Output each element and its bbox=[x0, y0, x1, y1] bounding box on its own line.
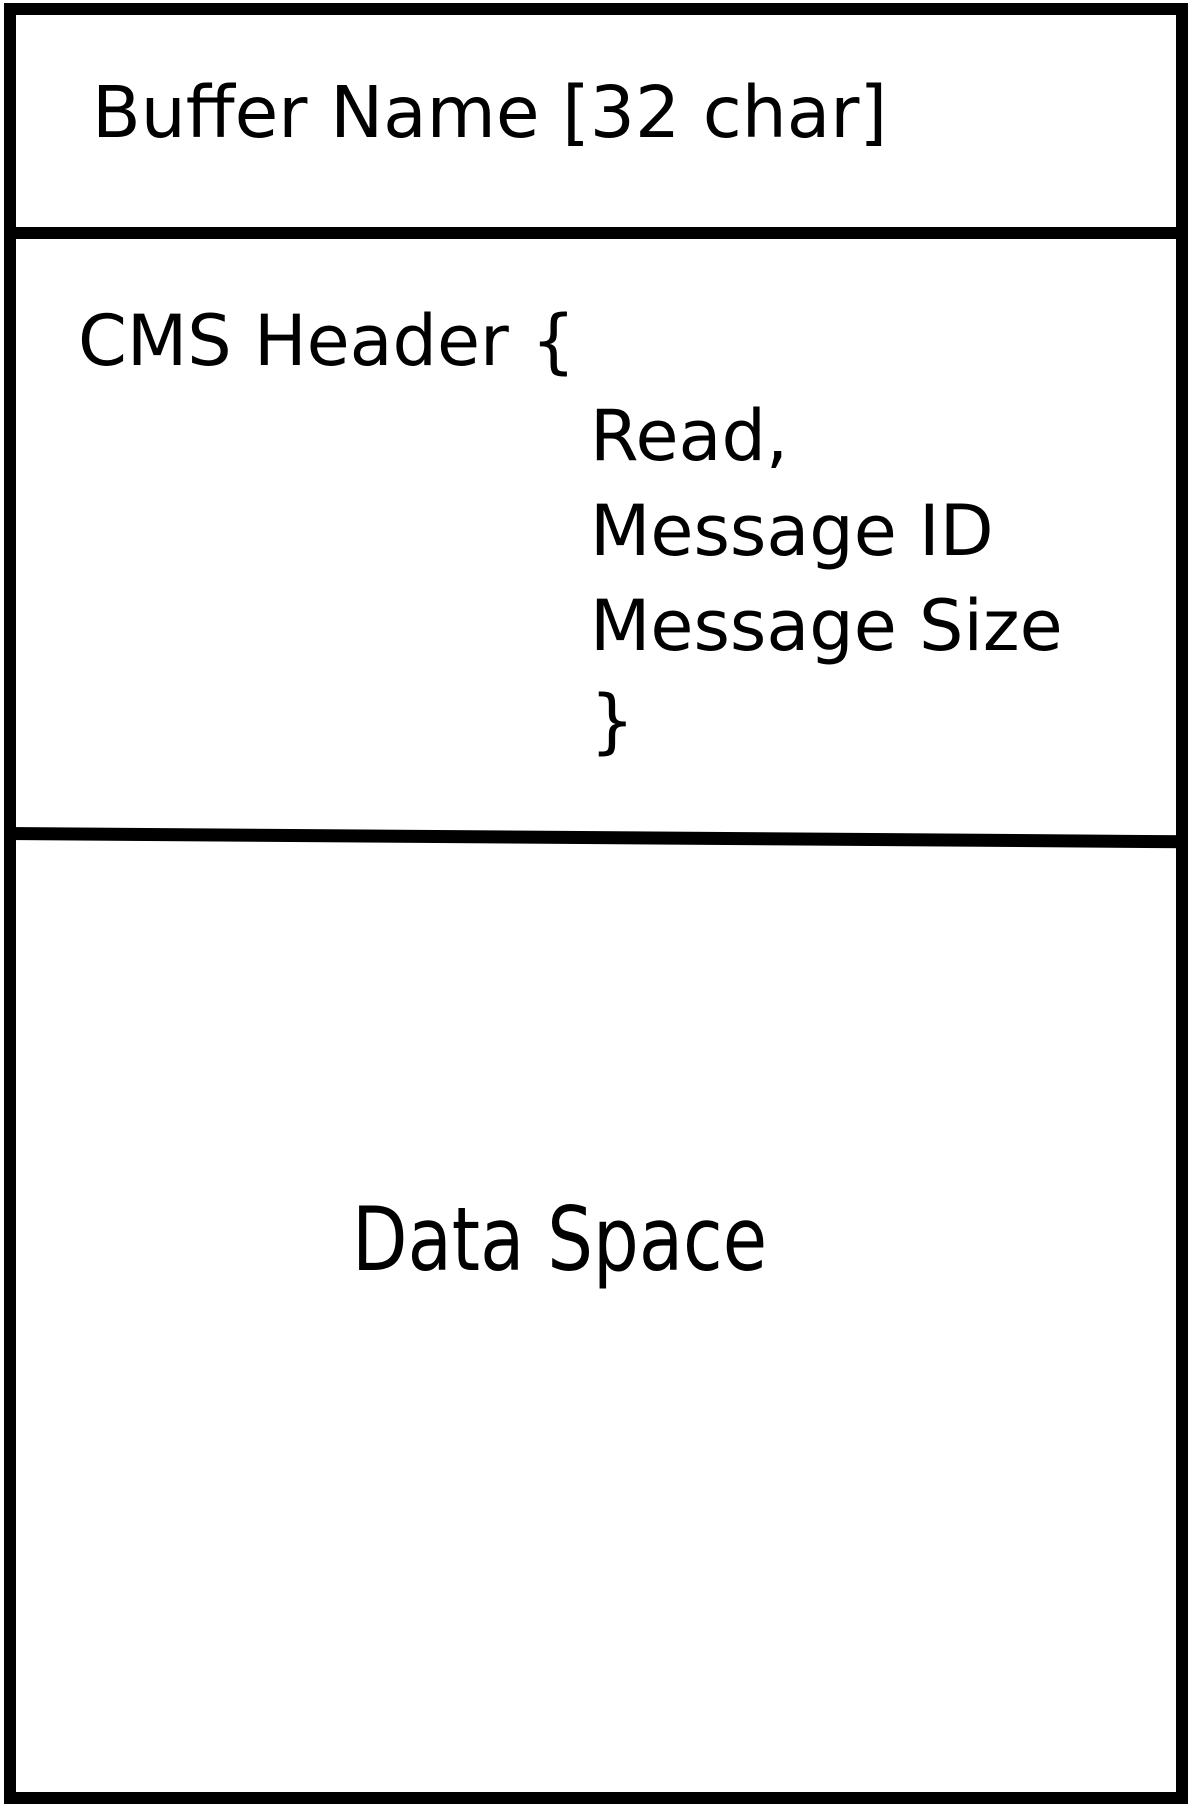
cms-header-open-label: CMS Header { bbox=[78, 294, 1063, 389]
buffer-name-label: Buffer Name [32 char] bbox=[92, 77, 887, 148]
cms-header-close-brace: } bbox=[590, 674, 1063, 769]
section-divider-top bbox=[6, 227, 1186, 239]
shared-memory-buffer-diagram: Buffer Name [32 char] CMS Header { Read,… bbox=[0, 0, 1188, 1804]
cms-field-read-label: Read, bbox=[590, 389, 1063, 484]
cms-field-message-id-label: Message ID bbox=[590, 484, 1063, 579]
data-space-label: Data Space bbox=[352, 1196, 767, 1284]
cms-field-message-size-label: Message Size bbox=[590, 579, 1063, 674]
cms-header-block: CMS Header { Read, Message ID Message Si… bbox=[78, 294, 1063, 769]
buffer-outline bbox=[4, 3, 1188, 1804]
